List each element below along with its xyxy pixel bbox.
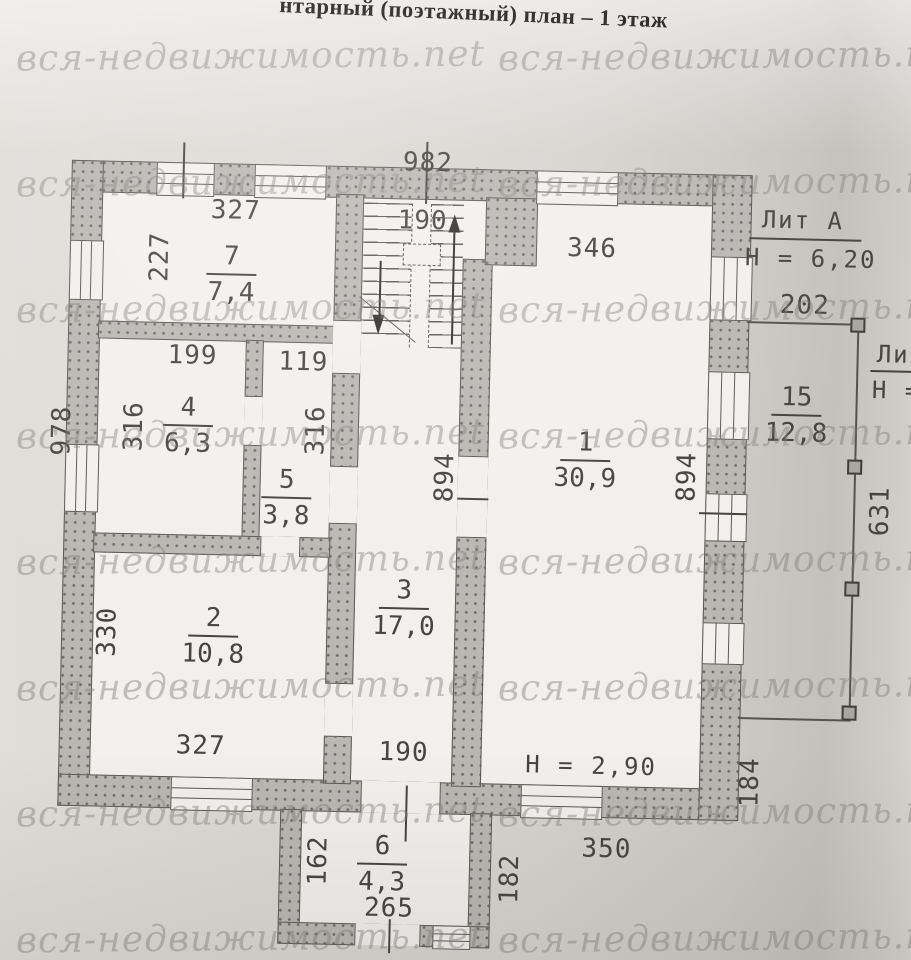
room-area: 10,8: [167, 638, 258, 670]
door-opening: [260, 536, 300, 557]
window: [254, 164, 327, 200]
dim-room1-top: 346: [567, 233, 618, 264]
porch-post: [841, 705, 856, 720]
room-4-label: 4 6,3: [142, 391, 233, 459]
building-liter-label: Лит А: [761, 205, 844, 235]
dim-room5-right: 316: [300, 405, 331, 456]
dim-hall-bottom: 190: [378, 737, 429, 768]
dim-bottom-right: 350: [581, 834, 632, 865]
dim-room2-bottom: 327: [175, 730, 226, 761]
room-number: 3: [379, 575, 430, 610]
dim-hall-right: 894: [429, 452, 460, 503]
door-opening: [329, 466, 358, 525]
room-number: 1: [560, 427, 611, 462]
window: [156, 162, 215, 197]
room-area: 6,3: [142, 427, 233, 459]
floor-plan-drawing: 982 327 190 346 227 199 119 316 316 978 …: [0, 0, 911, 960]
window: [170, 776, 253, 812]
entrance-door-opening: [360, 781, 441, 815]
dim-porch-top: 202: [779, 290, 830, 321]
dim-room7-top: 327: [211, 195, 262, 226]
dim-room6-right: 182: [494, 854, 525, 905]
stair-arrow-up-icon: [448, 214, 460, 232]
stair-opening-dashed: [403, 243, 441, 266]
dim-porch-right: 631: [865, 486, 896, 537]
dim-room6-left: 162: [303, 835, 334, 886]
room-3-label: 3 17,0: [358, 574, 449, 642]
liter-underline: [749, 237, 861, 241]
window: [432, 925, 471, 950]
scanned-floor-plan-page: нтарный (поэтажный) план – 1 этаж: [0, 0, 911, 960]
room-number: 6: [357, 830, 408, 865]
dim-room5-top: 119: [278, 347, 329, 378]
room-area: 30,9: [540, 462, 631, 494]
room-area: 7,4: [186, 276, 277, 308]
room-area: 3,8: [241, 500, 332, 532]
window: [704, 493, 747, 542]
dim-hall-top: 190: [397, 205, 448, 236]
room-area: 17,0: [358, 610, 449, 642]
room-number: 15: [771, 382, 822, 417]
room-1-label: 1 30,9: [540, 427, 631, 495]
dim-room7-left: 227: [144, 231, 175, 282]
room-15-label: 15 12,8: [751, 381, 842, 449]
window: [69, 240, 104, 301]
room1-height-label: Н = 2,90: [525, 750, 657, 781]
dim-room2-left: 330: [92, 606, 123, 657]
porch-right-line: [848, 324, 859, 722]
window: [536, 170, 619, 206]
dim-right-lower: 184: [734, 757, 765, 808]
room-number: 2: [188, 603, 239, 638]
room-number: 5: [261, 464, 312, 499]
dim-overall-left: 978: [46, 405, 77, 456]
window: [520, 784, 603, 820]
porch-liter-label: Лит: [876, 340, 911, 369]
dim-overall-top: 982: [403, 147, 454, 178]
room-7-label: 7 7,4: [186, 240, 277, 308]
window: [707, 371, 751, 440]
wall-flue-block: [485, 197, 539, 266]
room-number: 4: [163, 392, 214, 427]
room-6-label: 6 4,3: [336, 830, 427, 898]
window: [702, 622, 745, 665]
room-number: 7: [206, 241, 257, 276]
porch-post: [844, 581, 859, 596]
porch-bottom-line: [738, 717, 850, 722]
room-2-label: 2 10,8: [167, 602, 258, 670]
porch-post: [850, 318, 865, 333]
stair-arrow-down-icon: [372, 315, 384, 335]
door-opening: [244, 396, 263, 446]
porch-height-label: Н =: [872, 376, 911, 405]
room-area: 12,8: [751, 417, 842, 449]
room-area: 4,3: [336, 866, 427, 898]
room-5-label: 5 3,8: [241, 464, 332, 532]
porch-liter-underline: [870, 370, 911, 373]
porch-post: [847, 459, 862, 474]
dim-room1-right: 894: [671, 451, 702, 502]
porch-top-line: [747, 321, 859, 326]
door-opening: [324, 683, 353, 738]
building-height-label: Н = 6,20: [745, 243, 877, 274]
door-opening: [332, 320, 361, 375]
dim-room4-top: 199: [167, 340, 218, 371]
